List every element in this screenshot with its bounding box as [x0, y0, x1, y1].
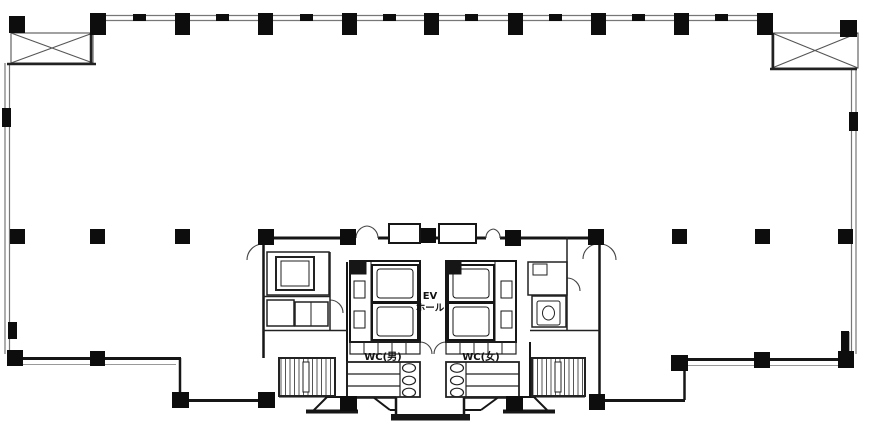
wc-men-label: WC(男) — [364, 351, 402, 363]
paper-background — [0, 0, 871, 439]
stairwell-left — [279, 358, 335, 396]
stairwell-right — [532, 358, 585, 397]
floor-plan: EV ホール WC(男) WC(女) — [0, 0, 871, 439]
wc-women-label: WC(女) — [462, 350, 500, 363]
ev-hall-label-line2: ホール — [416, 303, 445, 314]
ev-hall-label-line1: EV — [423, 291, 438, 302]
floor-plan-drawing: EV ホール WC(男) WC(女) — [0, 0, 871, 439]
